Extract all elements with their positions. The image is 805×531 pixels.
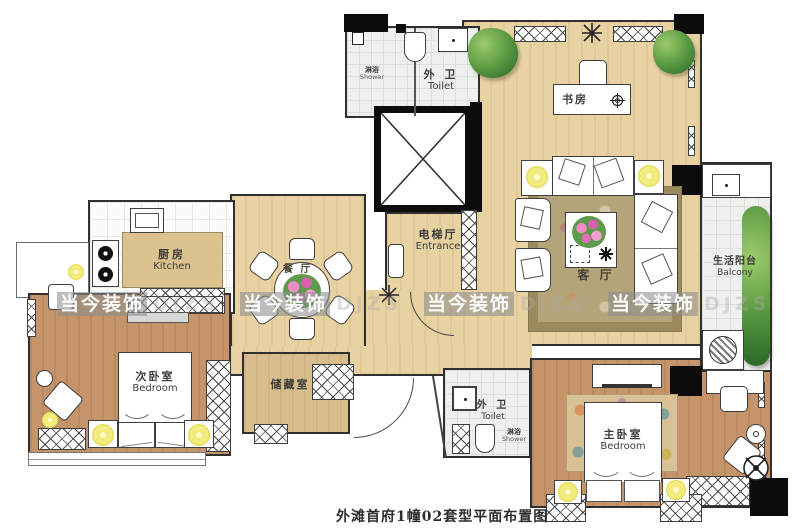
balcony-label: 生活阳台 Balcony <box>702 256 768 279</box>
dining-chair <box>289 318 315 340</box>
wall-block <box>396 24 406 33</box>
desk-chair <box>720 386 748 412</box>
armchair <box>515 248 551 292</box>
nightstand-lamp <box>92 424 114 446</box>
watermark-latin: DJZS <box>514 293 586 315</box>
bedroom2-cabinet <box>38 428 86 450</box>
elevator-shaft <box>374 106 472 212</box>
toilet-cabinet <box>452 424 470 454</box>
storage-shelf <box>254 424 288 444</box>
shower-bottom-label: 淋浴 Shower <box>498 428 530 444</box>
crosshair-icon <box>610 93 625 108</box>
watermark-latin: DJZS <box>698 293 770 315</box>
nightstand-lamp <box>188 424 210 446</box>
table-lamp <box>526 166 548 188</box>
kitchen-label: 厨房 Kitchen <box>134 248 210 273</box>
wall-ornament-icon <box>580 22 604 44</box>
bed-foot <box>118 422 155 448</box>
elevator-x-icon <box>381 113 465 205</box>
watermark-text: 当今装饰 <box>240 292 330 316</box>
wall-block <box>670 366 702 396</box>
radiator <box>688 126 695 156</box>
wall-block <box>750 478 788 516</box>
washing-machine <box>702 330 744 370</box>
study-chair <box>579 60 607 86</box>
balcony-sink <box>712 174 740 196</box>
decor-plant-icon <box>598 246 614 262</box>
corner-table <box>36 370 53 387</box>
plant <box>653 30 695 74</box>
living-label: 客 厅 <box>566 268 626 282</box>
watermark: 当今装饰 DJZS <box>424 292 586 316</box>
toilet-bottom-label: 外 卫 Toilet <box>468 400 518 423</box>
radiator <box>27 299 36 337</box>
plant <box>468 28 518 78</box>
bay-lamp <box>68 264 84 280</box>
armchair <box>515 198 551 242</box>
storage-label: 储藏室 <box>252 378 328 391</box>
watermark-text: 当今装饰 <box>424 292 514 316</box>
round-table <box>746 424 766 444</box>
bedroom2-window <box>28 452 206 466</box>
watermark-latin: DJZS <box>147 293 219 315</box>
corridor-door-arc <box>354 378 414 438</box>
watermark-text: 当今装饰 <box>57 292 147 316</box>
toilet-bowl <box>404 32 426 62</box>
table-lamp <box>638 165 660 187</box>
table-flowers <box>572 216 606 248</box>
corner-lamp <box>42 412 58 428</box>
watermark-latin: DJZS <box>330 293 402 315</box>
ceiling-fan-icon <box>742 454 770 482</box>
living-sofa <box>552 156 634 196</box>
nightstand-lamp <box>666 480 686 500</box>
tv-bar <box>602 384 652 388</box>
floor-plan: 书房 客 厅 餐 厅 <box>0 0 805 531</box>
watermark-text: 当今装饰 <box>608 292 698 316</box>
kitchen-stove <box>92 240 119 287</box>
nightstand-lamp <box>558 482 578 502</box>
shower-top-label: 淋浴 Shower <box>352 66 392 82</box>
study-desk: 书房 <box>553 84 631 115</box>
plan-caption: 外滩首府1幢02套型平面布置图 <box>336 506 548 526</box>
master-pillow <box>624 480 660 502</box>
entrance-label: 电梯厅 Entrance <box>402 228 474 253</box>
study-window <box>514 26 566 42</box>
dining-chair <box>289 238 315 260</box>
master-label: 主卧室 Bedroom <box>590 428 656 453</box>
study-label: 书房 <box>562 93 588 106</box>
wall-block <box>344 14 388 32</box>
shower-head <box>352 32 364 45</box>
watermark: 当今装饰 DJZS <box>57 292 219 316</box>
living-sofa-right <box>634 194 678 304</box>
bathroom-sink <box>438 28 468 52</box>
toilet-top-label: 外 卫 Toilet <box>416 68 466 93</box>
watermark: 当今装饰 DJZS <box>608 292 770 316</box>
kitchen-sink <box>130 208 164 233</box>
toilet-bowl <box>475 424 495 453</box>
bedroom2-label: 次卧室 Bedroom <box>122 370 188 395</box>
master-pillow <box>586 480 622 502</box>
watermark: 当今装饰 DJZS <box>240 292 402 316</box>
balcony-plants <box>742 206 770 366</box>
